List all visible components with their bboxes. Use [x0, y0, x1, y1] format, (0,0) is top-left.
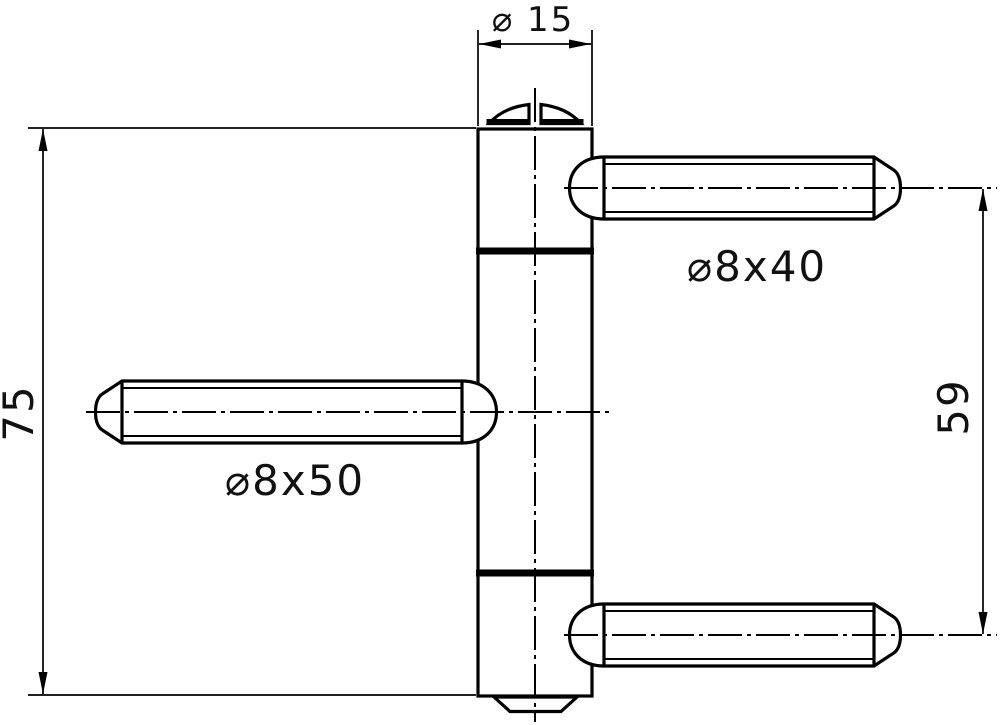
screw-head-right-base: [540, 119, 584, 125]
dim-label-pin-spacing: 59: [929, 378, 978, 435]
label-pin-middle-left-size: ⌀8x50: [225, 456, 365, 505]
dimension-pin-spacing: 59: [929, 189, 988, 634]
dim15-arrow-left: [479, 40, 501, 49]
dim59-arrow-bottom: [979, 612, 988, 634]
dim59-arrow-top: [979, 189, 988, 211]
hinge-drawing-canvas: ⌀ 15 75 59 ⌀8x40 ⌀8x50: [0, 0, 1000, 725]
dim75-arrow-bottom: [39, 672, 48, 694]
label-pin-top-right-size: ⌀8x40: [687, 242, 827, 291]
dim-label-barrel-diameter: ⌀ 15: [492, 0, 575, 40]
dim-label-hinge-height: 75: [0, 384, 43, 441]
dim15-arrow-right: [569, 40, 591, 49]
hinge-technical-drawing: ⌀ 15 75 59 ⌀8x40 ⌀8x50: [0, 0, 1000, 725]
dim75-arrow-top: [39, 129, 48, 151]
screw-head-left-base: [487, 119, 531, 125]
